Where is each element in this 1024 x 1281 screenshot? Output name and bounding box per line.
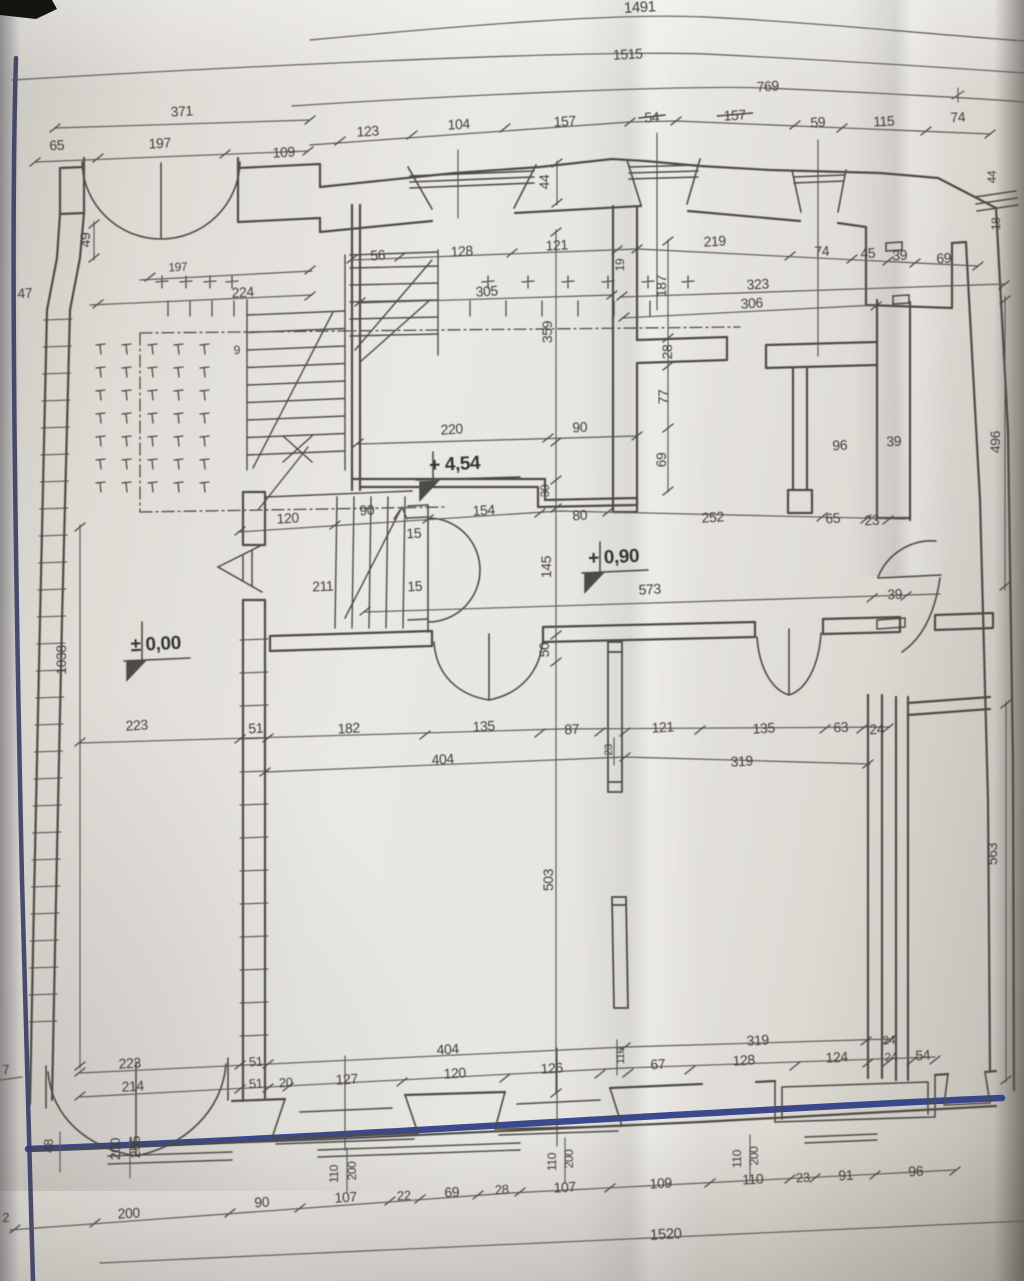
dimension-label: 109 xyxy=(649,1174,673,1191)
elevation-triangle-090 xyxy=(585,573,603,592)
dimension-label: 252 xyxy=(701,508,725,525)
dimension-label: 1515 xyxy=(613,45,644,63)
dimension-label: 121 xyxy=(545,236,569,253)
south-window-2 xyxy=(495,1088,622,1135)
dim-rows-exterior xyxy=(10,1170,1024,1263)
dimension-label: 56 xyxy=(370,247,386,264)
upper-room-south-wall xyxy=(352,479,637,507)
dimension-label: 24 xyxy=(884,1050,898,1065)
dimension-label: 109 xyxy=(272,143,296,160)
photographed-floor-plan: 1491151576937112310415754157591157465197… xyxy=(0,0,1024,1281)
dimension-label: 1520 xyxy=(649,1225,682,1244)
dim-1491 xyxy=(310,16,1024,41)
dimension-label: 19 xyxy=(613,258,627,271)
right-room-top-wall xyxy=(908,697,990,715)
under-stair-wedge xyxy=(218,545,262,592)
dimension-label: 200 xyxy=(107,1137,123,1160)
dimension-label: 96 xyxy=(908,1163,924,1180)
pillar xyxy=(608,642,622,792)
dimension-label: 563 xyxy=(984,842,1000,865)
dimension-label: 67 xyxy=(650,1056,666,1073)
dimension-label: 200 xyxy=(562,1149,576,1169)
dimension-label: 15 xyxy=(406,525,422,542)
dimension-label: 306 xyxy=(740,294,764,311)
elevation-label: + 0,90 xyxy=(588,546,640,570)
hall-double-door-1 xyxy=(434,634,543,700)
dimension-label: 219 xyxy=(703,232,727,249)
elevation-triangle-454 xyxy=(420,481,438,500)
dimension-label: 9 xyxy=(233,343,241,357)
dimension-label: 65 xyxy=(825,510,841,527)
dim-305-323-306 xyxy=(358,284,1005,318)
dimension-label: 39 xyxy=(887,586,903,603)
dimension-label: 59 xyxy=(810,114,826,131)
hatch-marks xyxy=(96,276,694,492)
dimension-label: 90 xyxy=(572,419,588,436)
dimension-label: 157 xyxy=(553,112,577,129)
dimension-label: 2 xyxy=(2,1210,10,1225)
dimension-label: 20 xyxy=(279,1075,294,1091)
dimension-label: 69 xyxy=(936,250,952,267)
dimension-label: 87 xyxy=(564,721,580,738)
dimension-label: 30 xyxy=(538,484,552,497)
dimension-label: 65 xyxy=(49,137,65,154)
north-facade-inner xyxy=(320,206,866,232)
masonry-ticks xyxy=(29,319,268,1036)
right-room-wall-a xyxy=(637,337,727,363)
dim-220-90 xyxy=(358,436,637,444)
dimension-label: 120 xyxy=(443,1064,467,1081)
dimension-label: 39 xyxy=(886,433,902,450)
elevation-triangle-000 xyxy=(127,661,145,680)
dimension-label: 404 xyxy=(436,1040,460,1057)
dimension-label: 63 xyxy=(833,719,849,736)
dimension-label: 24 xyxy=(882,1033,896,1048)
dimension-label: 769 xyxy=(756,77,780,94)
elevation-label: + 4,54 xyxy=(429,453,482,477)
dimension-label: 200 xyxy=(117,1204,141,1221)
dimension-label: 154 xyxy=(472,501,496,518)
hall-south-wall xyxy=(270,613,993,651)
chimney-stub xyxy=(788,368,812,513)
walls xyxy=(30,158,1014,1150)
dimension-label: 123 xyxy=(356,122,380,139)
dimension-label: 23 xyxy=(796,1170,811,1186)
dimension-label: 51 xyxy=(249,1054,264,1070)
dimension-label: 255 xyxy=(127,1135,143,1158)
dimension-label: 319 xyxy=(746,1031,770,1048)
photo-corner-shadow xyxy=(0,0,57,19)
dimension-label: 96 xyxy=(832,437,848,454)
dim-224 xyxy=(90,271,312,305)
dim-1515 xyxy=(12,53,1024,80)
dim-769 xyxy=(292,87,1024,106)
hall-double-door-2 xyxy=(757,629,821,695)
dimension-label: 74 xyxy=(950,109,966,126)
dimension-label: 90 xyxy=(254,1194,270,1211)
dimension-label: 223 xyxy=(118,1054,142,1071)
dimension-label: 200 xyxy=(747,1146,761,1166)
vestibule-left-wall xyxy=(60,158,84,214)
stairs xyxy=(247,250,438,628)
dimension-ticks xyxy=(10,116,1011,1233)
dimension-label: 110 xyxy=(545,1152,559,1171)
dimension-label: 121 xyxy=(651,718,675,735)
dimension-label: 28 xyxy=(659,344,675,359)
dimension-label: 51 xyxy=(249,1076,264,1092)
dimension-label: 44 xyxy=(985,170,999,183)
dimension-label: 50 xyxy=(536,642,552,657)
dimension-label: 69 xyxy=(444,1184,460,1201)
stair-risers xyxy=(247,266,438,628)
dimension-label: 127 xyxy=(335,1070,359,1087)
dimension-label: 110 xyxy=(742,1170,765,1187)
north-window-2 xyxy=(627,159,700,205)
dimension-label: 197 xyxy=(148,134,172,151)
dimension-label: 45 xyxy=(860,245,876,262)
dimension-label: 128 xyxy=(732,1051,756,1068)
dimension-label: 24 xyxy=(869,721,885,738)
dimension-label: 91 xyxy=(838,1167,854,1184)
dimension-label: 39 xyxy=(892,247,908,264)
dimension-label: 107 xyxy=(553,1178,577,1195)
blue-pen-lines xyxy=(14,58,1002,1281)
dimension-label: 200 xyxy=(345,1161,359,1181)
dimension-label: 74 xyxy=(814,243,830,260)
dimension-label: 135 xyxy=(752,719,776,736)
dimension-label: 49 xyxy=(77,232,93,247)
dimension-label: 18 xyxy=(989,217,1003,230)
partition-stub xyxy=(612,897,628,1008)
dimension-label: 223 xyxy=(125,716,149,733)
dim-row-left xyxy=(35,151,308,162)
right-room-wall-b xyxy=(766,342,877,368)
dimension-label: 23 xyxy=(864,512,880,529)
dimension-label: 54 xyxy=(915,1047,931,1064)
dimension-label: 126 xyxy=(540,1059,564,1076)
dimension-label: 7 xyxy=(2,1062,10,1077)
dim-371 xyxy=(55,120,310,128)
east-facade-inner xyxy=(966,243,990,1072)
vestibule-right-wall xyxy=(238,158,320,232)
dimension-label: 120 xyxy=(276,509,300,526)
dimension-label: 211 xyxy=(312,577,335,594)
dimension-label: 145 xyxy=(538,555,554,578)
dimension-label: 305 xyxy=(475,282,499,299)
dimension-label: 371 xyxy=(170,102,194,119)
dimension-label: 77 xyxy=(655,389,671,404)
dimension-label: 220 xyxy=(440,420,464,437)
dimension-label: 44 xyxy=(536,174,552,189)
vestibule-double-door xyxy=(82,162,240,239)
dimension-label: 110 xyxy=(615,1048,627,1065)
dimension-label: 124 xyxy=(825,1048,849,1065)
dimension-label: 182 xyxy=(337,719,361,736)
dimension-label: 496 xyxy=(987,430,1003,453)
dimension-label: 573 xyxy=(638,580,662,597)
right-partition-wall xyxy=(877,300,910,520)
dimension-label: 187 xyxy=(653,274,669,297)
dimension-label: 69 xyxy=(653,452,669,467)
dimension-label: 323 xyxy=(746,275,770,292)
dimension-label: 15 xyxy=(407,578,423,595)
dimension-label: 22 xyxy=(397,1188,412,1204)
dimension-label: 80 xyxy=(572,507,588,524)
dimension-label: 28 xyxy=(495,1182,510,1198)
dimension-label: 107 xyxy=(334,1188,358,1205)
dimension-label: 48 xyxy=(41,1139,56,1153)
dimension-label: 214 xyxy=(121,1077,145,1094)
dimension-label: 110 xyxy=(327,1164,341,1183)
dimension-label: 1491 xyxy=(623,0,656,17)
survey-cross xyxy=(952,88,964,102)
dash-dot-boundary xyxy=(140,327,740,512)
dimension-label: 197 xyxy=(168,259,188,274)
north-window-3 xyxy=(792,170,846,212)
dimension-label: 23 xyxy=(603,744,615,756)
dimension-label: 359 xyxy=(539,320,555,343)
dimension-label: 90 xyxy=(359,502,375,519)
elevation-label: ± 0,00 xyxy=(130,633,181,657)
dim-rows-bottom xyxy=(80,1039,935,1097)
dimension-labels: 1491151576937112310415754157591157465197… xyxy=(2,0,1003,1244)
dimension-label: 1038 xyxy=(53,645,69,675)
dimension-label: 51 xyxy=(248,720,264,737)
dimension-label: 128 xyxy=(450,242,474,259)
dimension-label: 224 xyxy=(231,283,255,300)
dimension-label: 135 xyxy=(472,717,496,734)
lower-east-walls xyxy=(868,695,908,1080)
dimension-label: 110 xyxy=(730,1149,744,1168)
dimension-label: 404 xyxy=(431,750,455,767)
floor-plan-drawing: 1491151576937112310415754157591157465197… xyxy=(0,0,1024,1281)
dimension-label: 47 xyxy=(17,285,33,302)
dimension-label: 503 xyxy=(540,868,556,891)
dimension-label: 319 xyxy=(730,752,754,769)
dimension-label: 115 xyxy=(873,112,896,129)
north-wall-step xyxy=(866,227,966,308)
dimension-label: 104 xyxy=(447,115,471,132)
